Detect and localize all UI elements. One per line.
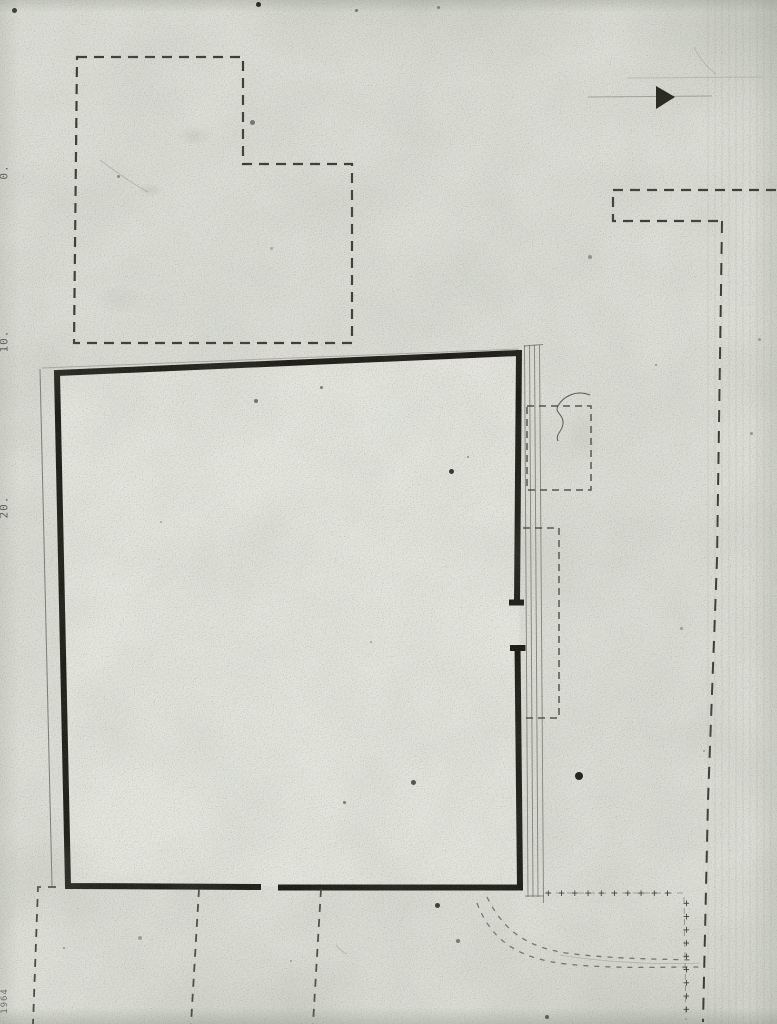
scratch-lower-right (560, 955, 700, 964)
dashed-outline-top-right (613, 190, 776, 221)
facade-cap-top (524, 345, 543, 347)
arrow-shaft (588, 96, 712, 97)
offset-line-left (40, 369, 52, 886)
building-interior (57, 353, 520, 887)
arrow-head-icon (656, 86, 675, 109)
scale-label-20: 20. (0, 496, 11, 519)
driveway-curve-inner (477, 903, 701, 967)
dashed-annex-square (527, 406, 591, 490)
fence-plus-row: + + + + + + + + + + (545, 887, 671, 900)
plan-linework: + + + + + + + + + + + + + + + + + + + (0, 0, 777, 1024)
facade-line-3 (535, 345, 539, 898)
scratch-upper-left (100, 160, 148, 192)
arrow-shaft-faint (627, 77, 763, 78)
scratch-bottom-center (336, 945, 347, 954)
year-label: 1964 (0, 988, 10, 1014)
ink-squiggle (557, 393, 590, 441)
dashed-drop-left (33, 887, 56, 1024)
scale-label-10: 10. (0, 330, 11, 353)
dashed-boundary-right (703, 221, 722, 1022)
facade-line-2 (530, 345, 534, 897)
wall-right-upper (517, 350, 519, 603)
scale-label-0: 0. (0, 164, 11, 179)
dashed-drop-center (191, 889, 199, 1024)
driveway-curve-outer (487, 897, 694, 960)
fence-plus-column: + + + + + + + + + (680, 900, 693, 1013)
facade-line-4 (540, 345, 544, 904)
dashed-drop-right (313, 889, 321, 1024)
facade-line-1 (525, 345, 529, 897)
dashed-outline-top-left (74, 57, 352, 343)
scratch-top-right (694, 47, 716, 74)
site-plan-drawing: + + + + + + + + + + + + + + + + + + + 0 (0, 0, 777, 1024)
